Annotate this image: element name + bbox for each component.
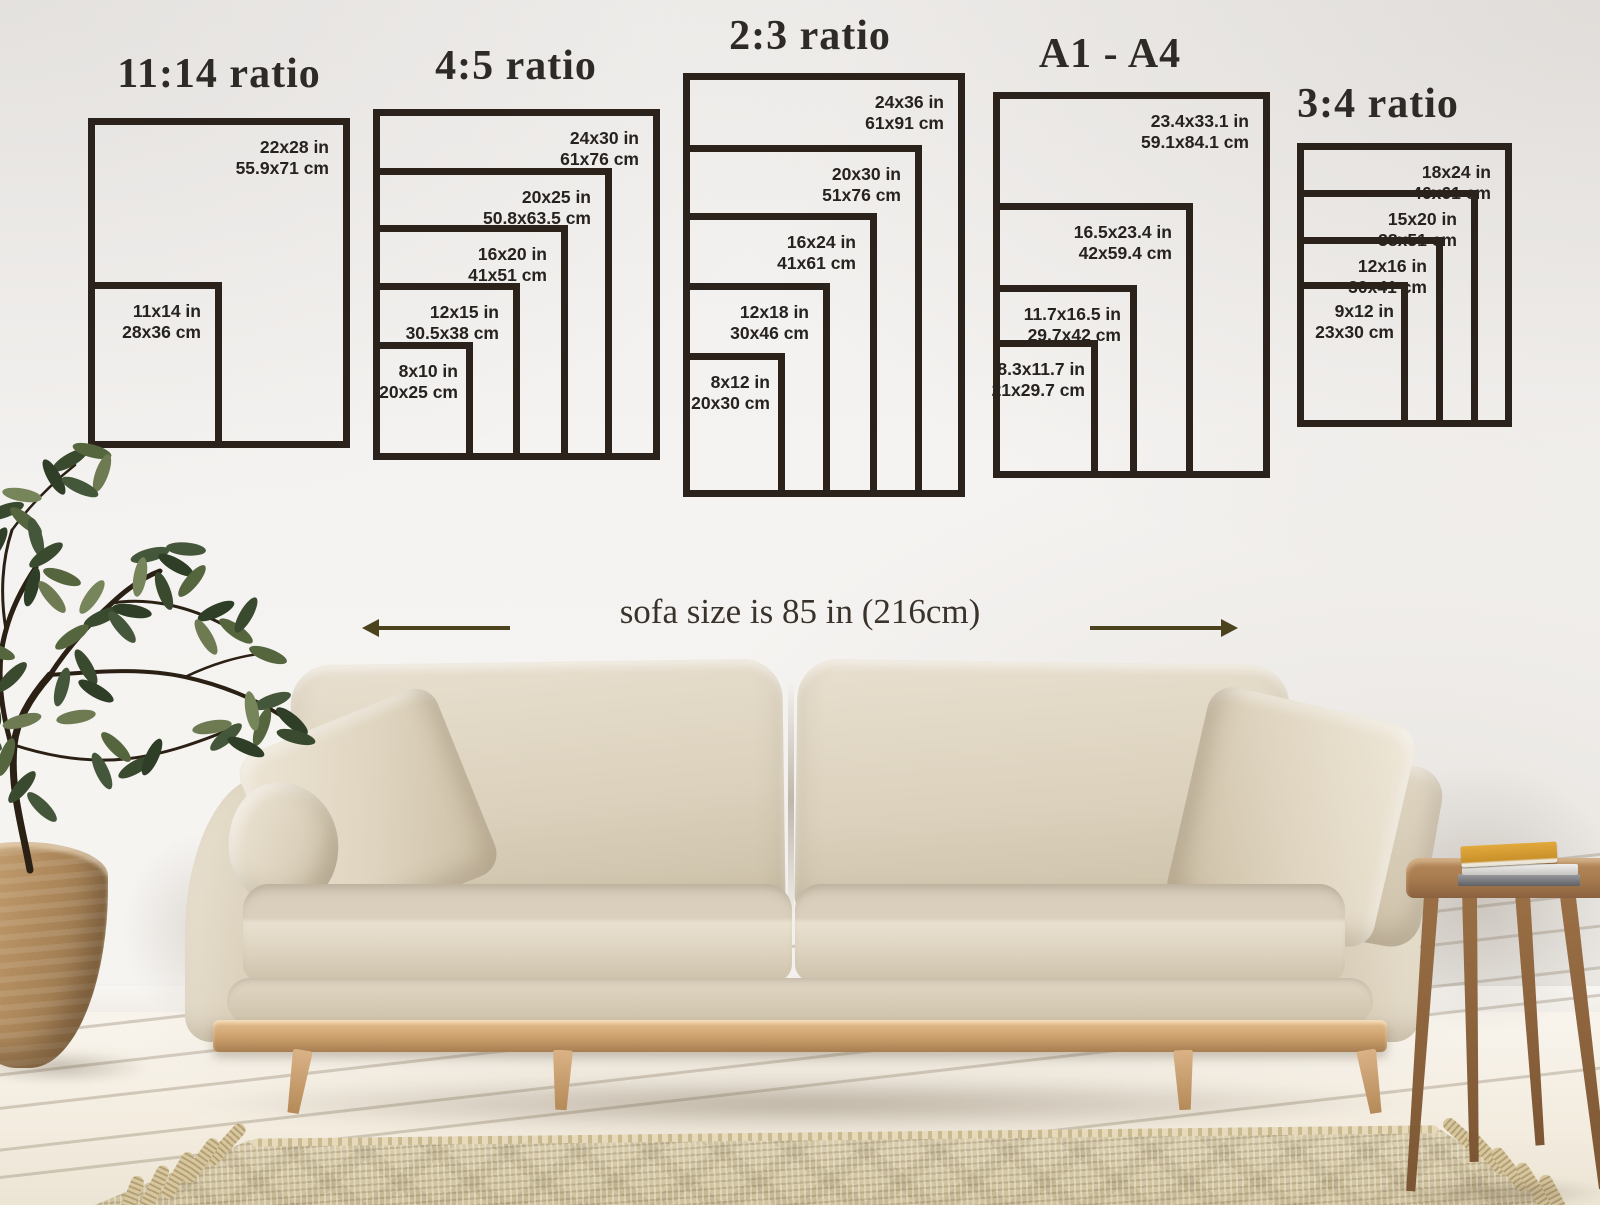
size-label: 20x30 in 51x76 cm	[822, 164, 901, 206]
size-group-a1-a4: 23.4x33.1 in 59.1x84.1 cm 16.5x23.4 in 4…	[993, 92, 1270, 478]
table-floor-shadow	[1400, 1178, 1600, 1205]
plant-foliage	[0, 425, 370, 1075]
group-title-a1-a4: A1 - A4	[960, 30, 1260, 78]
group-title-3-4: 3:4 ratio	[1228, 80, 1528, 128]
size-label: 16.5x23.4 in 42x59.4 cm	[1074, 222, 1172, 264]
size-label: 11x14 in 28x36 cm	[122, 301, 201, 343]
group-title-4-5: 4:5 ratio	[366, 42, 666, 90]
frame-8x12: 8x12 in 20x30 cm	[683, 353, 785, 497]
group-title-11-14: 11:14 ratio	[69, 50, 369, 98]
sofa-seat-cushion-right	[795, 884, 1345, 982]
size-label: 16x20 in 41x51 cm	[468, 244, 547, 286]
size-label: 24x30 in 61x76 cm	[560, 128, 639, 170]
frame-a4: 8.3x11.7 in 21x29.7 cm	[993, 340, 1098, 478]
frame-8x10: 8x10 in 20x25 cm	[373, 342, 473, 460]
sofa-size-caption: sofa size is 85 in (216cm)	[560, 592, 1040, 632]
size-label: 8x12 in 20x30 cm	[691, 372, 770, 414]
left-arrow-icon	[378, 626, 510, 630]
size-label: 23.4x33.1 in 59.1x84.1 cm	[1141, 111, 1249, 153]
size-label: 22x28 in 55.9x71 cm	[236, 137, 329, 179]
group-title-2-3: 2:3 ratio	[660, 12, 960, 60]
sofa-back-seam	[788, 680, 794, 920]
frame-9x12: 9x12 in 23x30 cm	[1297, 282, 1408, 427]
frame-11x14: 11x14 in 28x36 cm	[88, 282, 222, 448]
size-label: 24x36 in 61x91 cm	[865, 92, 944, 134]
size-label: 9x12 in 23x30 cm	[1315, 301, 1394, 343]
right-arrow-icon	[1090, 626, 1222, 630]
size-label: 8x10 in 20x25 cm	[379, 361, 458, 403]
sofa-wood-rail	[213, 1020, 1387, 1052]
wall-art-size-guide-scene: 11:14 ratio 4:5 ratio 2:3 ratio A1 - A4 …	[0, 0, 1600, 1205]
sofa-floor-shadow	[190, 1078, 1410, 1130]
size-group-11-14: 22x28 in 55.9x71 cm 11x14 in 28x36 cm	[88, 118, 350, 448]
size-group-4-5: 24x30 in 61x76 cm 20x25 in 50.8x63.5 cm …	[373, 109, 660, 460]
size-label: 16x24 in 41x61 cm	[777, 232, 856, 274]
size-label: 12x15 in 30.5x38 cm	[406, 302, 499, 344]
sofa-base-cushion	[227, 978, 1373, 1024]
size-group-3-4: 18x24 in 46x61 cm 15x20 in 38x51 cm 12x1…	[1297, 143, 1512, 427]
book-gray	[1458, 874, 1580, 886]
size-label: 12x18 in 30x46 cm	[730, 302, 809, 344]
size-label: 8.3x11.7 in 21x29.7 cm	[992, 359, 1085, 401]
size-label: 20x25 in 50.8x63.5 cm	[483, 187, 591, 229]
size-group-2-3: 24x36 in 61x91 cm 20x30 in 51x76 cm 16x2…	[683, 73, 965, 497]
